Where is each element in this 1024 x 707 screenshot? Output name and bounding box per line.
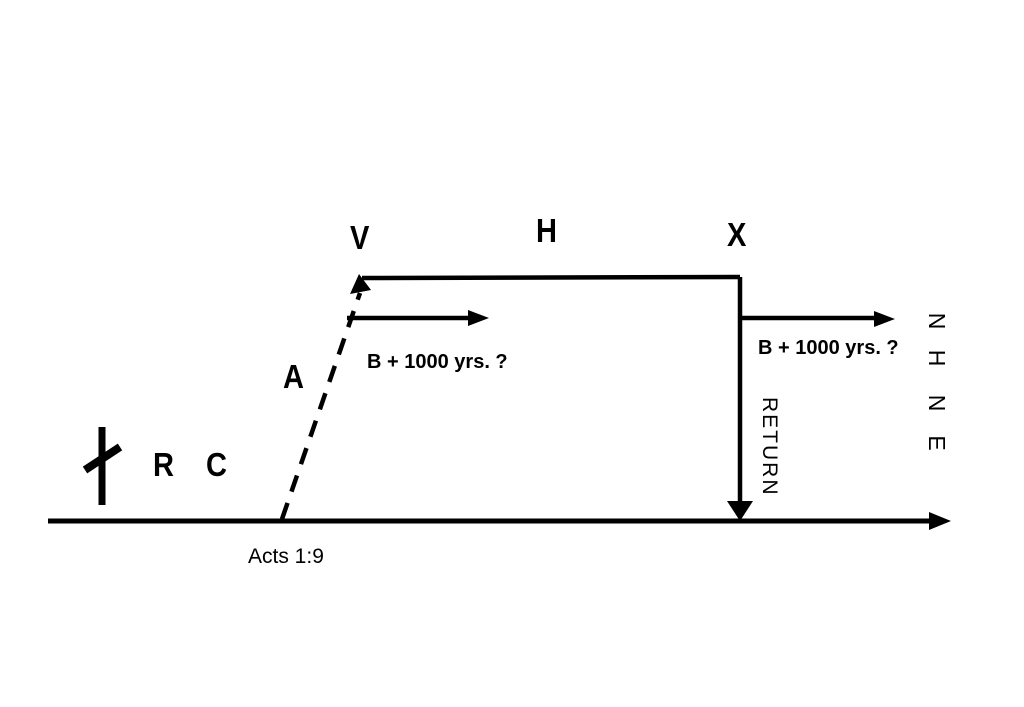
node-label-r: R <box>153 448 174 481</box>
nhne-letter-e: E <box>926 431 950 455</box>
millennium-left-arrowhead-icon <box>468 310 489 326</box>
millennium-left-label: B + 1000 yrs. ? <box>367 352 508 372</box>
diagram-canvas: R C A V H X Acts 1:9 B + 1000 yrs. ? B +… <box>0 0 1024 707</box>
node-label-v: V <box>350 221 369 254</box>
heaven-horizontal-line <box>362 277 740 278</box>
nhne-letter-n2: N <box>926 391 950 415</box>
nhne-letter-n1: N <box>926 309 950 333</box>
return-arrowhead-icon <box>727 501 753 521</box>
node-label-c: C <box>206 448 227 481</box>
node-label-x: X <box>727 218 746 251</box>
millennium-right-label: B + 1000 yrs. ? <box>758 338 899 358</box>
cross-icon <box>85 427 120 505</box>
timeline-arrowhead-icon <box>929 512 951 530</box>
acts-reference-label: Acts 1:9 <box>248 546 324 567</box>
return-label: RETURN <box>759 397 780 497</box>
node-label-a: A <box>283 360 304 393</box>
ascension-dashed-line <box>282 293 360 519</box>
node-label-h: H <box>536 214 557 247</box>
nhne-letter-h: H <box>926 346 950 370</box>
millennium-right-arrowhead-icon <box>874 311 895 327</box>
